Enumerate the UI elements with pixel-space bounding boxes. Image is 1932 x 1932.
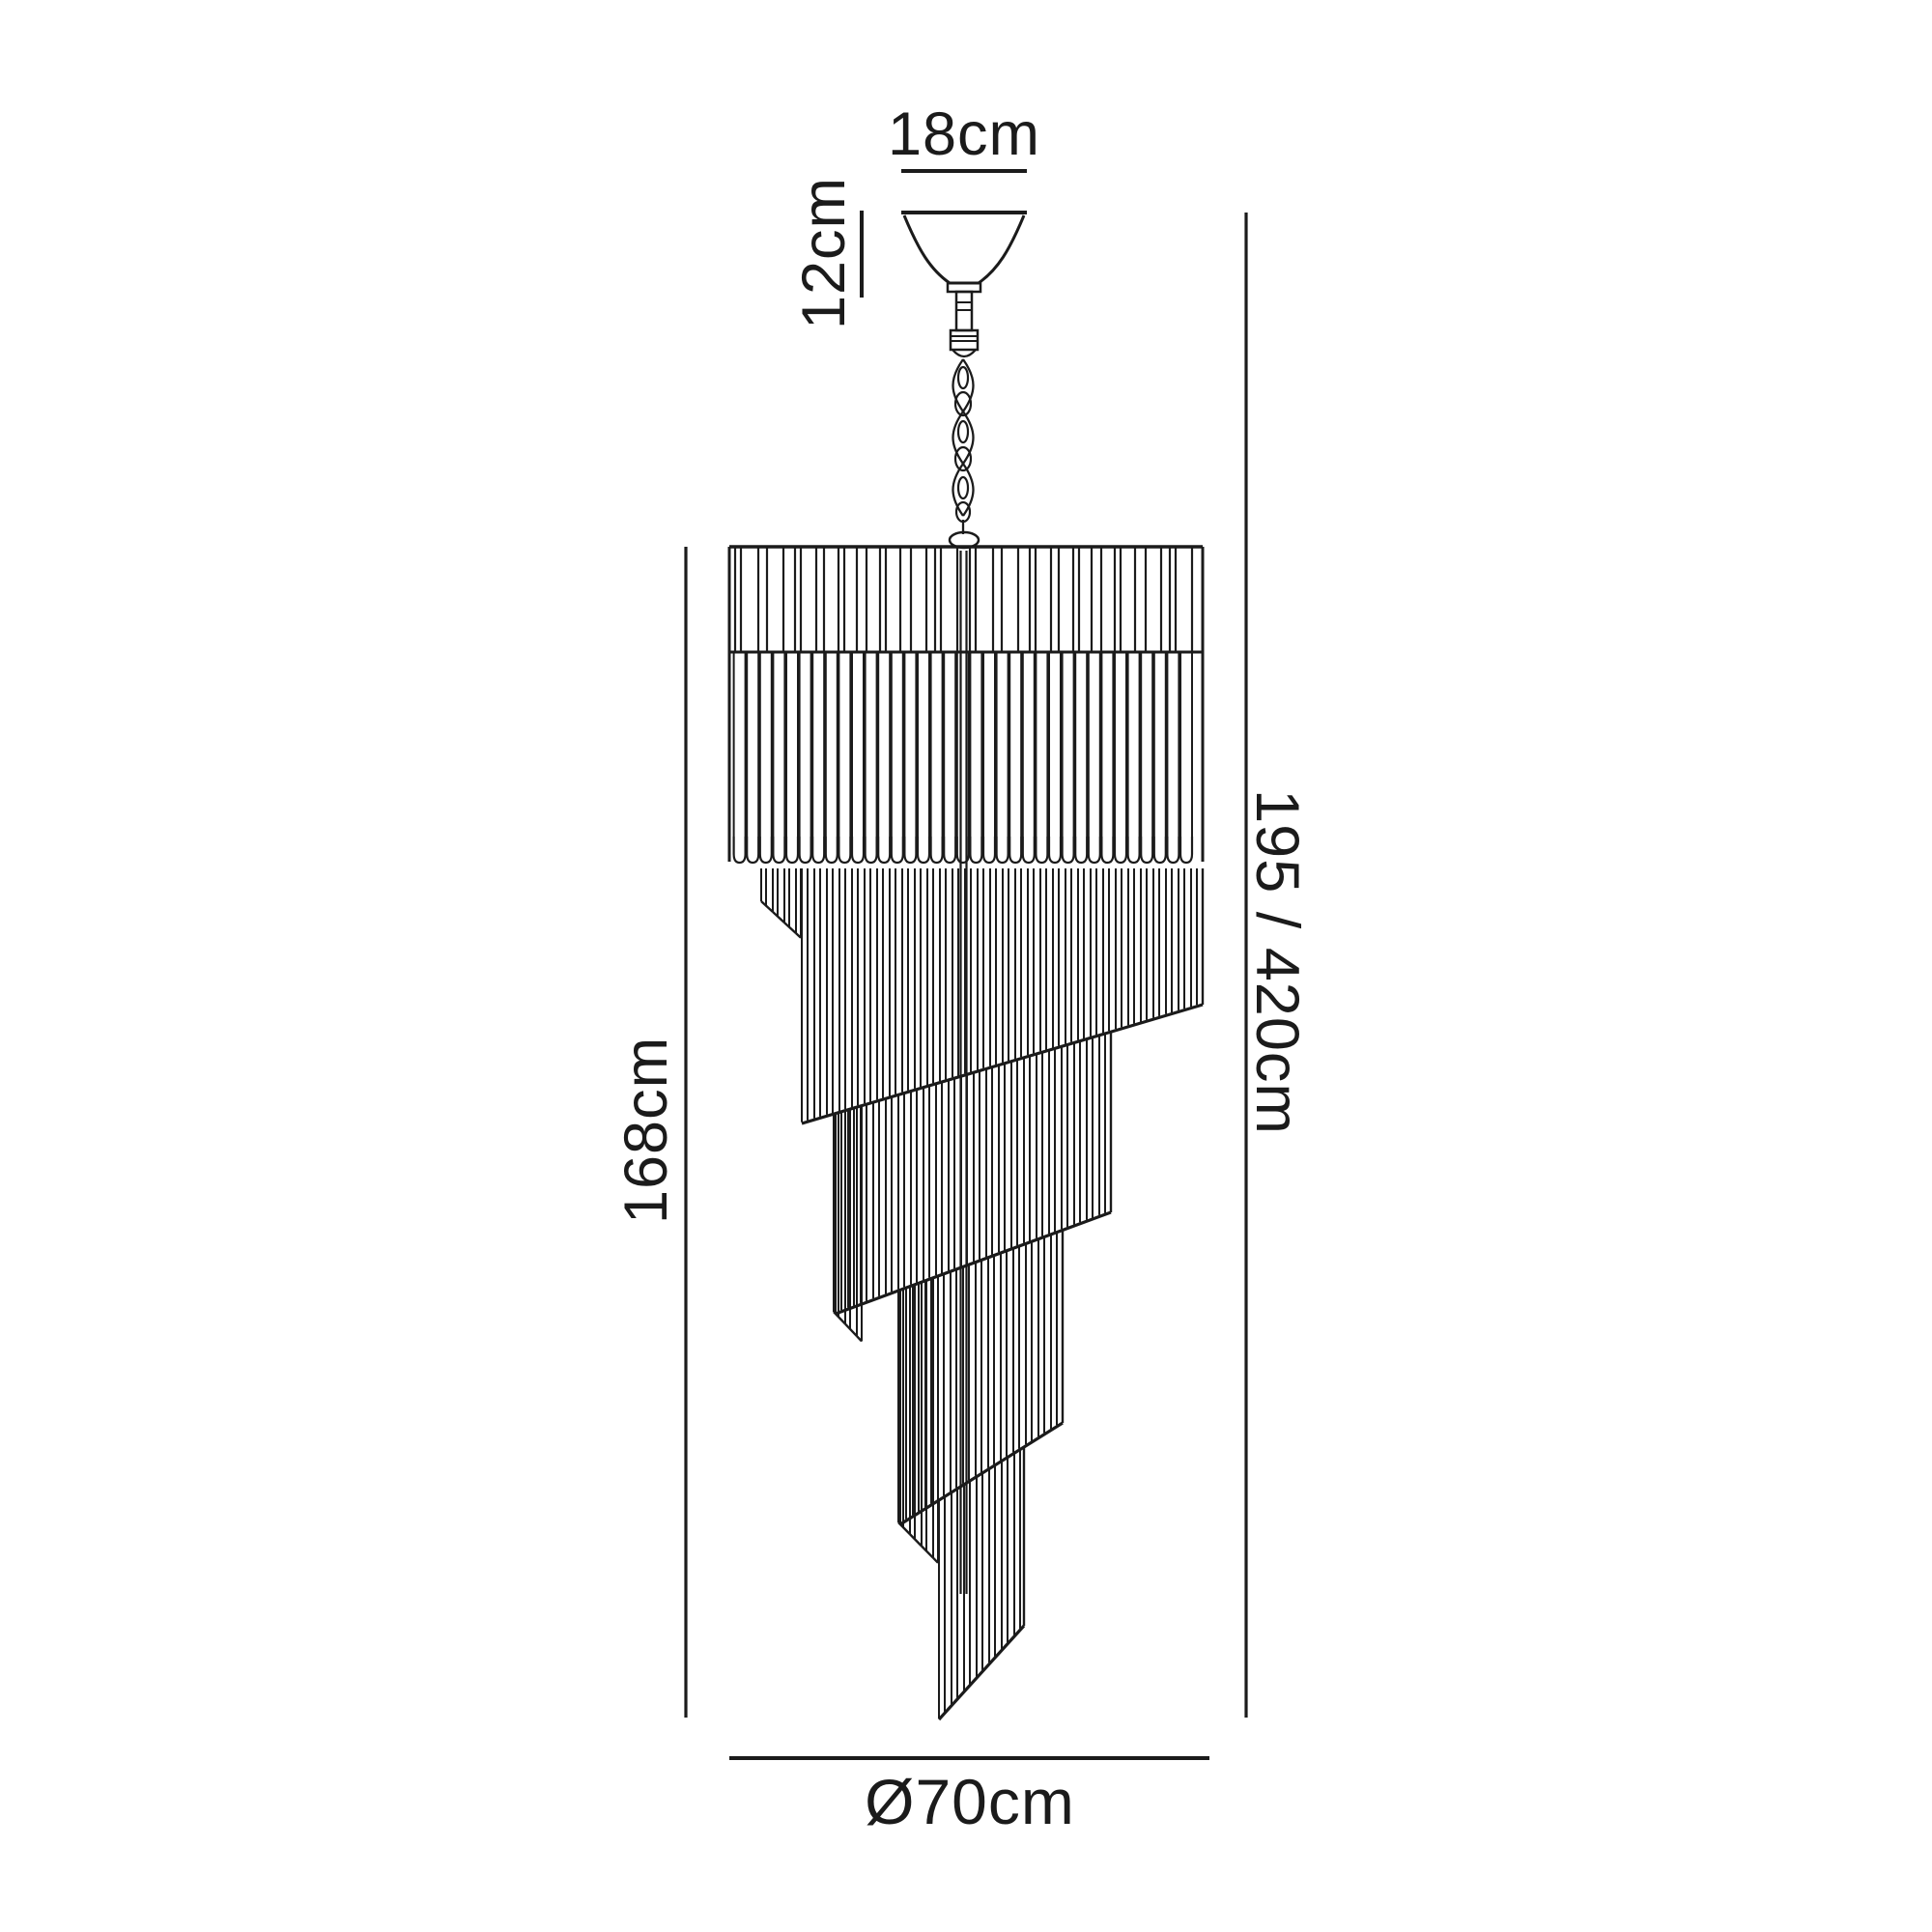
crystal-rod-foot [1009,837,1021,863]
dim-body-height: 168cm [612,547,686,1718]
crystal-rod-foot [866,837,877,863]
dim-diameter: Ø70cm [729,1758,1209,1837]
crystal-rod-foot [1154,837,1166,863]
crystal-rod-foot [1036,837,1047,863]
spiral-tier-5 [939,1446,1024,1719]
crystal-rod-foot [1115,837,1126,863]
crystal-rod-foot [852,837,864,863]
crystal-rod-foot [1128,837,1140,863]
crystal-rod-foot [1101,837,1113,863]
crystal-rod-foot [734,837,746,863]
chain-twist-wire [953,359,974,516]
drum-rim-band [735,547,1192,652]
drum-crystal-rods [734,652,1192,863]
crystal-rod-foot [838,837,850,863]
crystal-rod-foot [1141,837,1152,863]
crystal-rod-foot [944,837,955,863]
crystal-rod-foot [1180,837,1192,863]
crystal-rod-foot [760,837,772,863]
crystal-rod-foot [878,837,890,863]
ceiling-canopy [901,213,1027,356]
crystal-rod-foot [1023,837,1035,863]
chain-link [958,477,968,498]
crystal-rod-foot [931,837,943,863]
crystal-rod-foot [786,837,798,863]
dim-label-canopy-width: 18cm [888,100,1040,168]
crystal-rod-foot [1075,837,1087,863]
dim-canopy-width: 18cm [888,100,1040,171]
crystal-rod-foot [747,837,758,863]
dimension-drawing-page: 18cm 12cm 168cm 195 / 420cm Ø70cm [0,0,1932,1932]
crystal-rod-foot [983,837,995,863]
chain-twist-wire [953,359,974,516]
dim-canopy-height: 12cm [790,177,862,329]
crystal-rod-foot [826,837,838,863]
crystal-rod-foot [970,837,981,863]
suspension-chain [950,359,979,548]
chain-link [955,447,971,470]
chandelier-dimension-drawing: 18cm 12cm 168cm 195 / 420cm Ø70cm [0,0,1932,1932]
spiral-tier-2 [802,868,1203,1123]
crystal-rod-foot [1089,837,1100,863]
dim-label-body-height: 168cm [612,1037,680,1224]
dim-total-height: 195 / 420cm [1243,213,1311,1718]
crystal-rod-foot [1049,837,1061,863]
crystal-rod-foot [997,837,1009,863]
chain-link [958,421,968,442]
crystal-rod-foot [773,837,784,863]
crystal-rod-foot [892,837,903,863]
crystal-rod-foot [1063,837,1074,863]
crystal-rod-foot [812,837,824,863]
chain-link [956,502,970,522]
canopy-bell [904,215,1024,283]
chandelier-drawing [729,213,1203,1719]
dim-label-total-height: 195 / 420cm [1243,789,1311,1135]
dim-label-canopy-height: 12cm [790,177,858,329]
chain-link [958,367,968,388]
crystal-rod-foot [918,837,929,863]
crystal-rod-foot [1167,837,1179,863]
spiral-crystal-tiers [761,868,1203,1719]
crystal-rod-foot [904,837,916,863]
crystal-rod-foot [800,837,811,863]
spiral-start-steps [761,868,801,938]
dim-label-diameter: Ø70cm [865,1766,1075,1837]
